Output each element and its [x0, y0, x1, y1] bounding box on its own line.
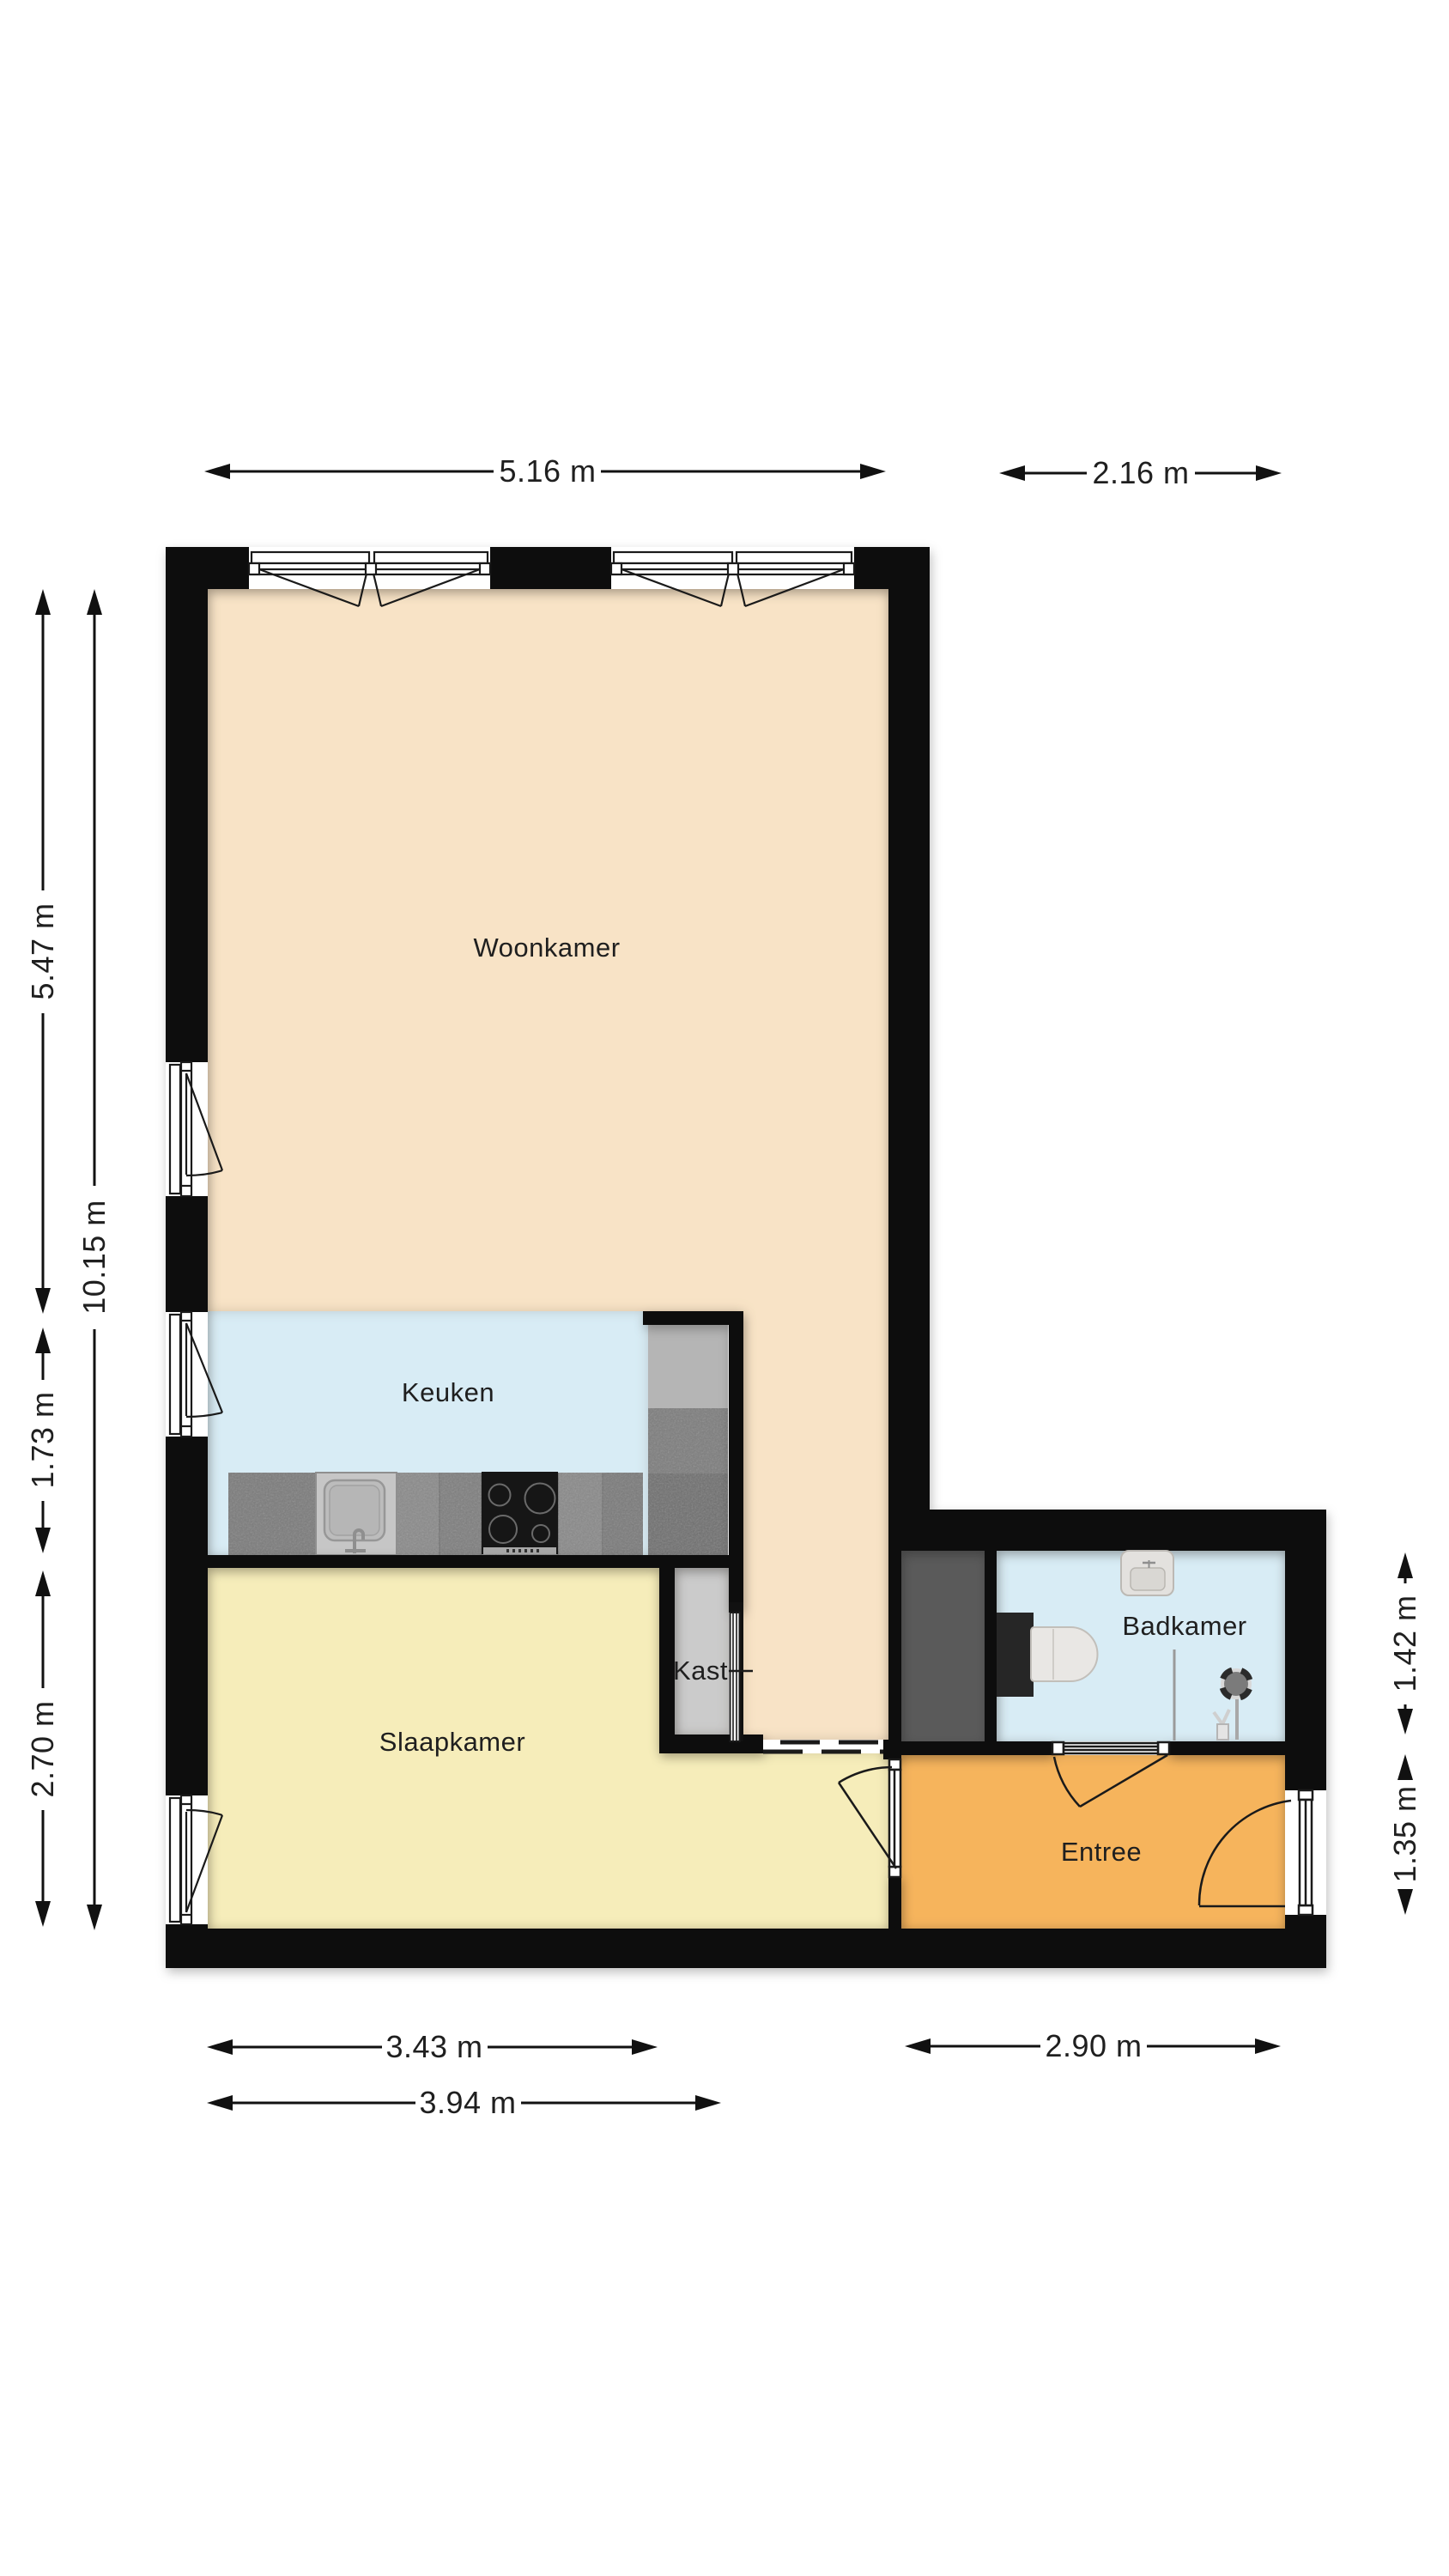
- svg-text:3.43 m: 3.43 m: [385, 2029, 482, 2064]
- svg-text:5.47 m: 5.47 m: [25, 902, 60, 999]
- svg-text:5.16 m: 5.16 m: [499, 453, 596, 489]
- svg-text:10.15 m: 10.15 m: [76, 1200, 112, 1315]
- svg-text:Woonkamer: Woonkamer: [473, 933, 620, 963]
- svg-text:1.73 m: 1.73 m: [25, 1391, 60, 1488]
- svg-text:3.94 m: 3.94 m: [419, 2085, 516, 2120]
- svg-text:1.35 m: 1.35 m: [1387, 1785, 1422, 1882]
- svg-text:2.16 m: 2.16 m: [1092, 455, 1189, 490]
- svg-text:1.42 m: 1.42 m: [1387, 1595, 1422, 1692]
- svg-text:Kast: Kast: [673, 1656, 728, 1686]
- svg-text:Slaapkamer: Slaapkamer: [379, 1727, 525, 1757]
- svg-text:Badkamer: Badkamer: [1122, 1611, 1246, 1641]
- svg-text:2.70 m: 2.70 m: [25, 1700, 60, 1797]
- svg-text:Keuken: Keuken: [402, 1377, 494, 1407]
- svg-text:2.90 m: 2.90 m: [1045, 2028, 1142, 2063]
- svg-text:Entree: Entree: [1061, 1837, 1142, 1867]
